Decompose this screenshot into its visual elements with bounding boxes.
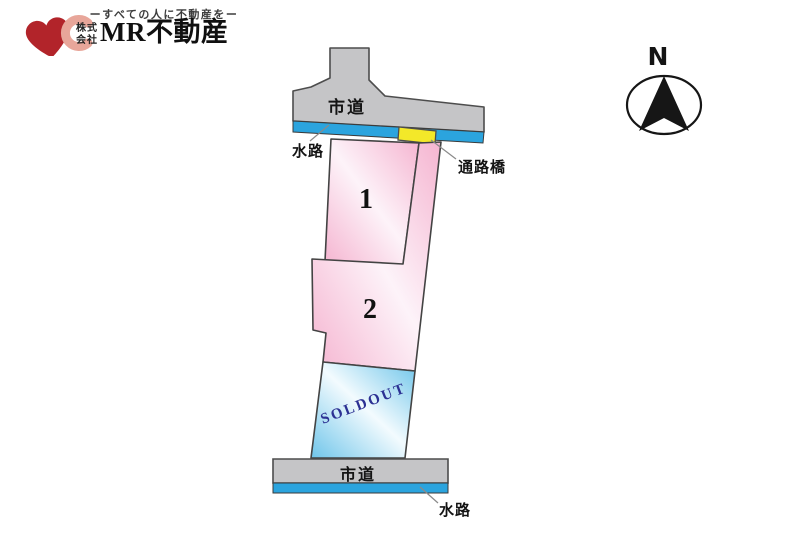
top-waterway-label: 水路 <box>286 140 330 161</box>
logo-company-prefix: 株式 会社 <box>76 23 98 46</box>
bridge-label: 通路橋 <box>449 156 515 177</box>
top-road-label: 市道 <box>317 93 377 118</box>
top-road-shape <box>293 48 484 132</box>
site-plan-drawing <box>0 0 800 545</box>
lot2-number-label: 2 <box>350 294 390 326</box>
compass-north-label: N <box>640 42 676 71</box>
logo-prefix-line1: 株式 <box>76 23 98 35</box>
bottom-waterway-label: 水路 <box>432 499 478 520</box>
company-logo: ーすべての人に不動産をー 株式 会社 MR不動産 <box>18 2 248 52</box>
site-plan-page: ーすべての人に不動産をー 株式 会社 MR不動産 N 市道 水路 通路橋 1 2… <box>0 0 800 545</box>
bottom-road-label: 市道 <box>328 461 388 485</box>
logo-company-name: MR不動産 <box>100 19 228 46</box>
logo-prefix-line2: 会社 <box>76 35 98 47</box>
lot1-number-label: 1 <box>346 184 386 216</box>
logo-company-row: 株式 会社 MR不動産 <box>76 19 228 46</box>
